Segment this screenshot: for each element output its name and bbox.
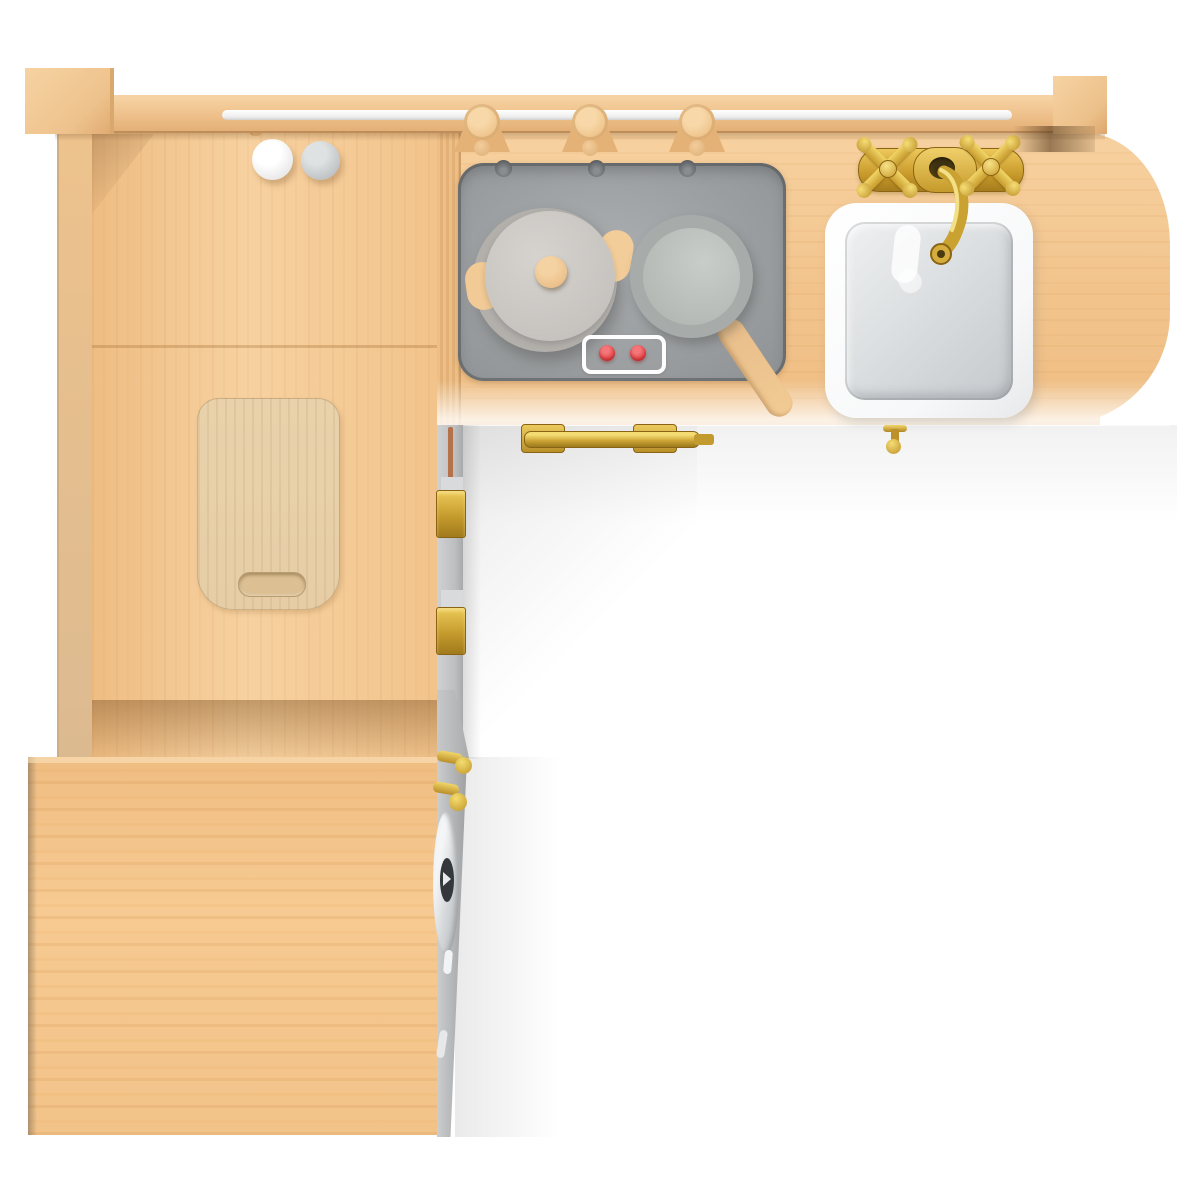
corner-post-left bbox=[25, 68, 114, 134]
utensil-hook bbox=[667, 100, 727, 160]
left-side-plank bbox=[57, 133, 94, 757]
panel-seam bbox=[92, 345, 437, 348]
handle-arm-tip bbox=[1002, 132, 1023, 153]
handle-cap bbox=[982, 158, 1000, 176]
stove-screw bbox=[679, 160, 696, 177]
hook-tip bbox=[582, 140, 598, 156]
handle-arm-tip bbox=[899, 134, 920, 155]
stove-screw bbox=[495, 160, 512, 177]
faucet-cross-handle bbox=[953, 129, 1027, 203]
utensil-hook bbox=[452, 100, 512, 160]
drain-tap-ball bbox=[886, 439, 901, 454]
frying-pan-inner bbox=[643, 228, 740, 325]
door-edge-rod bbox=[448, 427, 453, 479]
cutting-board-slot bbox=[238, 572, 306, 597]
utensil-hook bbox=[560, 100, 620, 160]
hinge-cap bbox=[441, 590, 463, 608]
hook-tip bbox=[689, 140, 705, 156]
handle-arm-tip bbox=[1002, 178, 1023, 199]
door-handle-stub bbox=[694, 434, 714, 445]
cutting-board bbox=[197, 398, 340, 610]
footwell-shadow bbox=[92, 700, 437, 757]
play-kitchen-render bbox=[0, 0, 1200, 1200]
handle-arm-tip bbox=[899, 180, 920, 201]
hook-knob bbox=[572, 104, 608, 140]
handle-arm-tip bbox=[853, 134, 874, 155]
bench-box-top bbox=[28, 757, 437, 1135]
door-handle-bar bbox=[524, 431, 700, 448]
hook-knob bbox=[679, 104, 715, 140]
stove-control-panel bbox=[582, 335, 666, 374]
pot-lid-knob bbox=[535, 256, 567, 288]
brass-peg-ball bbox=[449, 793, 467, 811]
handle-cap bbox=[879, 160, 897, 178]
cabinet-edge-shadow bbox=[463, 425, 481, 759]
shadow-right-of-bench bbox=[455, 757, 605, 1137]
stove-screw bbox=[588, 160, 605, 177]
frying-pan bbox=[630, 215, 753, 338]
stove-knob-red bbox=[630, 345, 646, 361]
countertop-front-fade bbox=[437, 380, 1170, 426]
brass-peg-ball bbox=[455, 757, 472, 774]
faucet-cross-handle bbox=[850, 131, 924, 205]
hook-tip bbox=[474, 140, 490, 156]
brass-hinge bbox=[436, 490, 466, 538]
handle-arm-tip bbox=[853, 180, 874, 201]
handle-arm-tip bbox=[956, 132, 977, 153]
hanging-ball-white bbox=[252, 139, 293, 180]
brass-hinge bbox=[436, 607, 466, 655]
handle-arm-tip bbox=[956, 178, 977, 199]
hanging-ball-gray bbox=[301, 141, 340, 180]
hook-knob bbox=[464, 104, 500, 140]
stove-knob-red bbox=[599, 345, 615, 361]
bench-box-left-edge bbox=[28, 757, 37, 1135]
bench-box-top-edge bbox=[28, 757, 437, 763]
